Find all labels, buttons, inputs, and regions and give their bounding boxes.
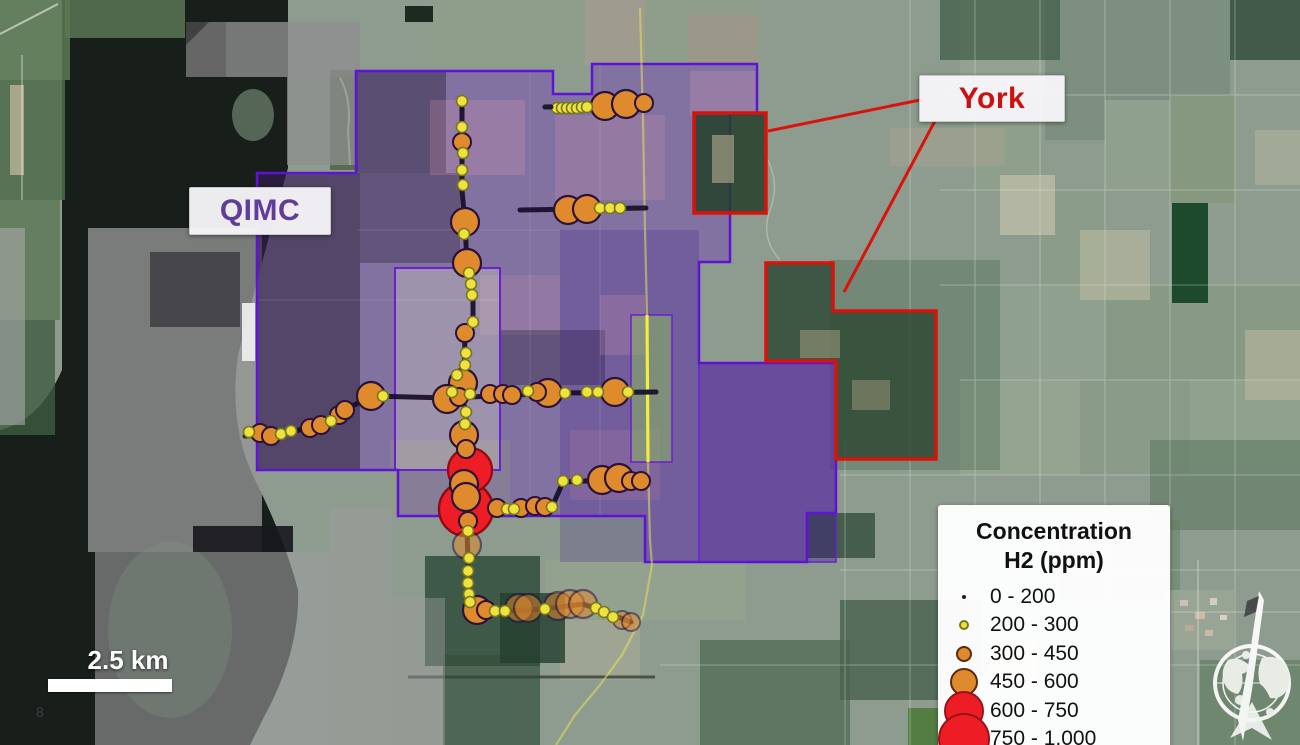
h2-point: [523, 386, 534, 397]
h2-point: [463, 526, 474, 537]
h2-point: [466, 279, 477, 290]
h2-point: [461, 407, 472, 418]
legend-range-label: 0 - 200: [990, 585, 1055, 609]
h2-point: [326, 416, 337, 427]
legend-title: Concentration H2 (ppm): [938, 517, 1170, 575]
h2-point: [631, 206, 636, 211]
h2-point: [463, 566, 474, 577]
h2-point: [622, 613, 640, 631]
legend-symbol: [938, 620, 990, 630]
legend: Concentration H2 (ppm) 0 - 200200 - 3003…: [938, 505, 1170, 745]
legend-item: 750 - 1,000: [938, 725, 1170, 745]
legend-range-label: 450 - 600: [990, 670, 1079, 694]
h2-point: [467, 290, 478, 301]
h2-point: [457, 96, 468, 107]
legend-symbol: [938, 595, 990, 599]
legend-range-label: 750 - 1,000: [990, 727, 1096, 745]
legend-item: 0 - 200: [938, 583, 1170, 612]
legend-range-label: 600 - 750: [990, 699, 1079, 723]
h2-point: [464, 268, 475, 279]
h2-point: [457, 165, 468, 176]
h2-point: [457, 440, 475, 458]
h2-point: [608, 612, 619, 623]
h2-point: [654, 390, 659, 395]
h2-point: [464, 553, 475, 564]
legend-symbol: [938, 713, 990, 745]
h2-point: [378, 391, 389, 402]
h2-point: [582, 102, 593, 113]
scale-bar-label: 2.5 km: [58, 645, 198, 676]
h2-point: [547, 502, 558, 513]
legend-rows: 0 - 200200 - 300300 - 450450 - 600600 - …: [938, 583, 1170, 745]
qimc-dark-block: [699, 363, 836, 562]
legend-range-label: 200 - 300: [990, 613, 1079, 637]
h2-point: [461, 348, 472, 359]
h2-point: [463, 578, 474, 589]
legend-range-label: 300 - 450: [990, 642, 1079, 666]
scale-bar: [48, 679, 172, 692]
page-number: 8: [36, 704, 44, 720]
h2-point: [465, 597, 476, 608]
h2-point: [509, 504, 520, 515]
h2-point: [543, 105, 548, 110]
h2-point: [540, 604, 551, 615]
h2-point: [560, 388, 571, 399]
h2-point: [623, 387, 634, 398]
h2-point: [468, 317, 479, 328]
h2-point: [452, 483, 480, 511]
h2-point: [646, 390, 651, 395]
qimc-label: QIMC: [189, 187, 331, 235]
h2-point: [459, 229, 470, 240]
h2-point: [244, 427, 255, 438]
h2-point: [558, 476, 569, 487]
h2-point: [582, 387, 593, 398]
h2-point: [572, 475, 583, 486]
green-strip-parcel: [631, 315, 672, 462]
legend-symbol: [938, 646, 990, 662]
h2-point: [593, 387, 604, 398]
h2-point: [458, 180, 469, 191]
qimc-inner-parcel: [395, 268, 500, 470]
h2-point: [458, 148, 469, 159]
legend-item: 300 - 450: [938, 640, 1170, 669]
lake-island: [232, 89, 274, 141]
legend-item: 200 - 300: [938, 611, 1170, 640]
h2-point: [615, 203, 626, 214]
h2-point: [500, 606, 511, 617]
qimc-label-text: QIMC: [220, 194, 300, 228]
h2-point: [514, 594, 542, 622]
h2-point: [503, 386, 521, 404]
h2-point: [457, 122, 468, 133]
h2-point: [632, 472, 650, 490]
york-label-text: York: [959, 82, 1025, 116]
york-label: York: [919, 75, 1065, 122]
h2-point: [638, 390, 643, 395]
legend-title-line1: Concentration: [938, 517, 1170, 546]
h2-point: [286, 426, 297, 437]
map-figure: QIMC York Concentration H2 (ppm) 0 - 200…: [0, 0, 1300, 745]
h2-point: [640, 206, 645, 211]
h2-point: [447, 387, 458, 398]
h2-point: [460, 360, 471, 371]
h2-point: [549, 105, 554, 110]
h2-point: [635, 94, 653, 112]
h2-point: [460, 419, 471, 430]
h2-point: [452, 370, 463, 381]
h2-point: [336, 401, 354, 419]
legend-title-line2: H2 (ppm): [938, 546, 1170, 575]
h2-point: [465, 389, 476, 400]
